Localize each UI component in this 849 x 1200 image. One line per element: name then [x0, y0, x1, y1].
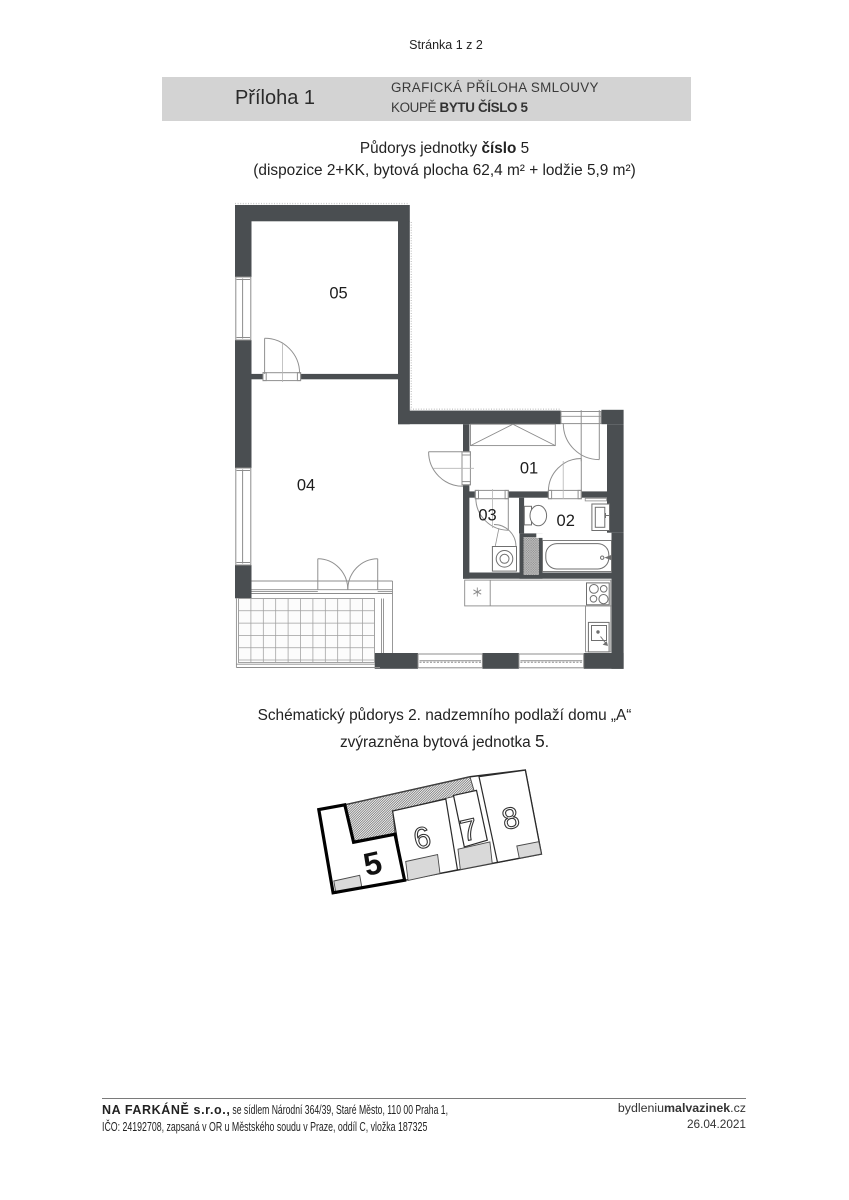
svg-text:01: 01 [520, 459, 538, 477]
svg-text:05: 05 [329, 285, 347, 303]
svg-text:04: 04 [297, 476, 315, 494]
svg-text:02: 02 [557, 512, 575, 530]
svg-text:5: 5 [360, 844, 385, 883]
svg-text:03: 03 [478, 506, 496, 524]
